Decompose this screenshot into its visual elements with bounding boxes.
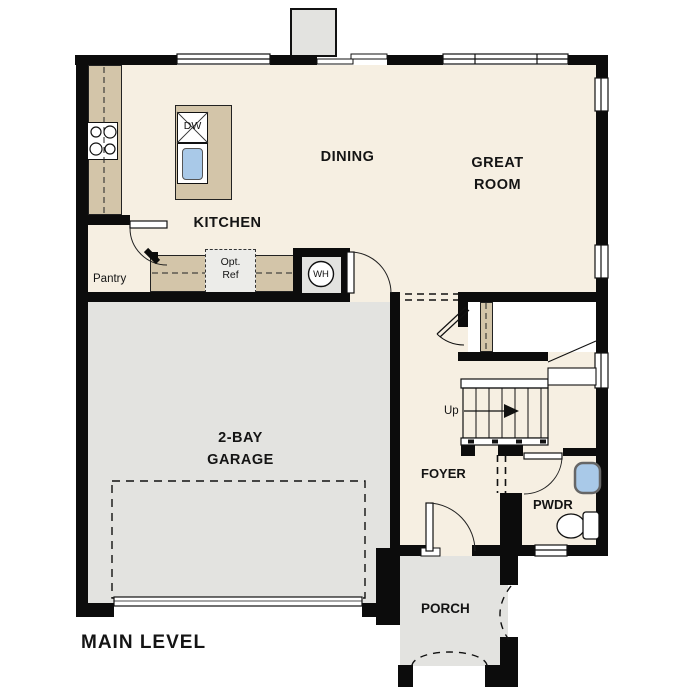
foyer-label: FOYER [421, 464, 466, 484]
pwdr-label: PWDR [533, 495, 573, 515]
pwdr-sink [575, 463, 600, 493]
plan-linework [0, 0, 687, 687]
staircase [461, 379, 548, 445]
floor-plan: DINING GREAT ROOM KITCHEN 2-BAY GARAGE F… [0, 0, 687, 687]
pantry-door [130, 221, 167, 265]
closet-door [437, 307, 469, 345]
pantry-label: Pantry [93, 271, 126, 288]
dishwasher-label: DW [177, 119, 208, 135]
sliding-door [317, 54, 387, 64]
water-heater-label: WH [308, 268, 334, 282]
kitchen-label: KITCHEN [180, 213, 275, 235]
dining-label: DINING [305, 147, 390, 169]
stairs-up-label: Up [444, 403, 459, 420]
front-door [421, 503, 475, 556]
counter-centerline [104, 67, 486, 351]
opt-ref-line2: Ref [205, 269, 256, 282]
garage-entry-door [347, 252, 391, 293]
cased-opening [405, 294, 458, 300]
stair-rail-niche [548, 341, 596, 385]
stove-burners [90, 126, 116, 155]
great-room-label: GREAT ROOM [450, 153, 545, 197]
opt-ref-label: Opt. Ref [205, 256, 256, 282]
pwdr-door [524, 453, 562, 494]
opt-ref-line1: Opt. [205, 256, 256, 269]
plan-title: MAIN LEVEL [81, 629, 206, 658]
garage-label: 2-BAY GARAGE [193, 428, 288, 472]
garage-door [112, 481, 365, 606]
porch-arch [412, 586, 511, 666]
cased-opening [498, 455, 506, 493]
porch-label: PORCH [421, 599, 470, 619]
pwdr-toilet [557, 512, 599, 539]
